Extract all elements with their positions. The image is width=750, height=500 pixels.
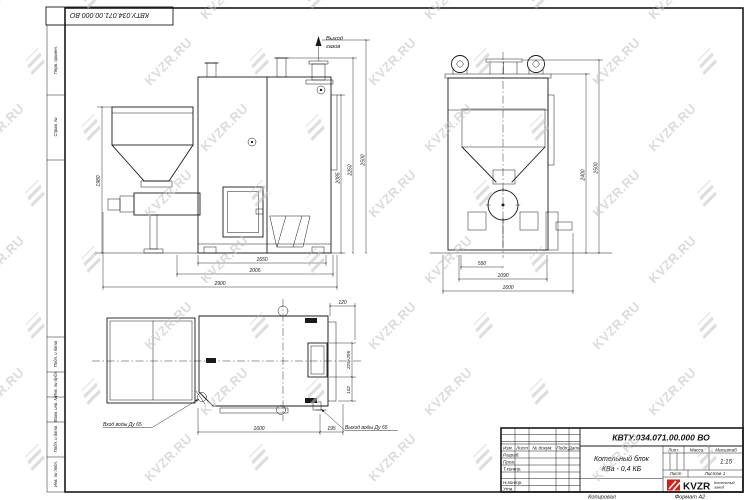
kvzr-logo-text: KVZR [683,482,711,493]
furnace-door [223,187,263,237]
end-view-dimensions: 2400 2500 550 1090 1600 [443,60,603,294]
screw-feeder [108,193,200,253]
scale-value: 1:15 [720,459,733,466]
top-left-stamp-number: КВТУ.034.071.00.000 ВО [69,11,149,18]
lit-label: Лит. [667,447,679,452]
dim-195: 195 [327,426,336,432]
gas-outlet-label-2: газов [326,44,340,50]
doc-title-line1: Котельный блок [594,455,650,463]
row-nkontr: Н.контр. [503,480,522,485]
fuel-hopper [112,107,193,187]
plan-view: 120 225×295 102 1600 195 Вход воды Ду 65… [92,299,398,435]
row-prov: Пров. [503,460,515,465]
water-outlet-label: Выход воды Ду 65 [345,425,388,431]
upper-panel [462,109,545,147]
front-view: Выход газов [95,36,370,290]
kvzr-logo-sub2: завод [713,486,724,490]
side-label-perv-primen: Перв. примен. [53,46,58,74]
dim-102: 102 [346,386,351,394]
drawing-canvas: Перв. примен. Справ. № Подп. и дата Инв.… [0,0,750,500]
flange-right [520,212,538,230]
row-tkontr: Т.контр. [503,467,522,472]
dim-2085: 2085 [336,172,342,184]
col-list: Лист [515,446,528,451]
front-view-dimensions: 1980 2085 2250 2500 1650 2005 2900 [96,40,370,290]
dim-1980: 1980 [96,175,102,186]
lifting-lug-right [528,56,545,75]
footer-format: Формат А2 [675,494,706,500]
dim-120: 120 [338,300,347,306]
gas-outlet-label-1: Выход [326,36,343,42]
footer-copy: Копировал [588,494,617,500]
doc-number: КВТУ.034.071.00.000 ВО [612,433,710,443]
ash-pan [270,216,310,247]
dim-2005: 2005 [248,268,260,274]
side-label-podp-data1: Подп. и дата [53,340,58,367]
drawing-sheet: Перв. примен. Справ. № Подп. и дата Инв.… [0,0,750,500]
col-izm: Изм. [503,446,513,451]
flue-outlet [306,61,333,94]
doc-title-line2: КВа - 0,4 КБ [602,466,642,473]
side-label-sprav-no: Справ. № [53,117,58,136]
col-doc: № докум. [532,446,552,451]
dim-1600-end: 1600 [502,285,513,291]
downcomer-pipe [331,95,337,170]
side-label-podp-data2: Подп. и дата [53,425,58,452]
row-razrab: Разраб. [503,453,520,458]
dim-1600-plan: 1600 [253,426,264,432]
dim-1650: 1650 [256,257,267,263]
masshtab-label: Масштаб [715,447,737,452]
water-inlet-label: Вход воды Ду 65 [103,422,142,428]
dim-1090: 1090 [497,273,508,279]
col-podp: Подп. [556,446,568,451]
feeder-motor [108,199,120,210]
dim-550: 550 [478,261,487,267]
dim-225x295: 225×295 [346,351,351,370]
col-data: Дата [567,446,581,451]
lifting-lug-left [452,56,469,75]
end-view: 2400 2500 550 1090 1600 [430,52,612,294]
sheet-frame: Перв. примен. Справ. № Подп. и дата Инв.… [46,7,743,492]
dim-2500-front: 2500 [361,154,367,166]
hopper-funnel [462,147,545,184]
dim-2500-end: 2500 [594,162,600,174]
dim-2900: 2900 [213,281,225,287]
dim-2400: 2400 [581,169,587,181]
kvzr-logo-sub1: Котельный [714,481,736,485]
massa-label: Масса [690,447,704,452]
listov-label: Листов 1 [704,471,726,476]
side-label-inv-dubl: Инв. № дубл. [53,371,58,397]
kvzr-logo: KVZR Котельный завод [667,480,736,493]
boiler-plan [199,316,336,413]
flange-left [468,212,486,230]
boiler-end-body [448,78,548,250]
top-rail [486,59,522,74]
water-labels: Вход воды Ду 65 Выход воды Ду 65 [103,399,398,431]
safety-valve [277,58,286,77]
row-utv: Утв. [503,487,513,492]
title-block: Изм. Лист № докум. Подп. Дата Разраб. Пр… [501,428,743,500]
dim-2250: 2250 [348,164,354,176]
list-label: Лист [669,471,682,476]
boiler-body [198,77,331,253]
hopper-plan [107,318,195,403]
plan-view-dimensions: 120 225×295 102 1600 195 [198,300,356,435]
side-label-inv-podl: Инв. № подл. [53,461,58,487]
side-label-vzam-inv: Взам. инв. № [53,396,58,422]
